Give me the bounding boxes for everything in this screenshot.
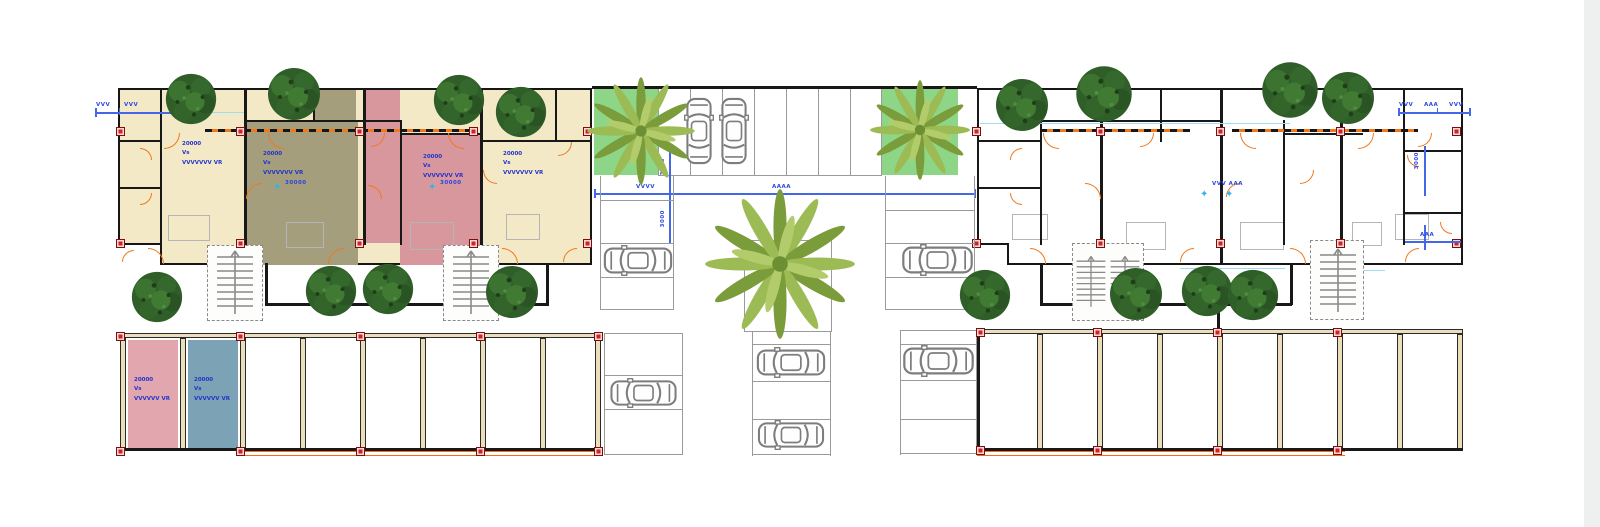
column-marker xyxy=(1213,328,1222,337)
column-marker xyxy=(1216,239,1225,248)
column-marker xyxy=(236,127,245,136)
boundary-orange-line xyxy=(977,451,1345,456)
car-icon xyxy=(606,378,681,408)
stall-line xyxy=(600,243,674,244)
boundary-orange-line xyxy=(242,451,601,456)
garage-wall xyxy=(120,338,126,450)
garage-wall xyxy=(595,338,601,450)
wall xyxy=(1283,133,1363,135)
column-marker xyxy=(236,332,245,341)
garage-wall xyxy=(1217,334,1223,449)
stall-line xyxy=(752,381,831,382)
stall-line xyxy=(682,333,683,455)
stall-line xyxy=(600,200,674,201)
tree-icon xyxy=(302,262,360,320)
balcony-dashed-wall xyxy=(1232,129,1418,132)
garage-wall xyxy=(480,338,486,450)
room-area-label: 20000 Vs VVVVVVV VR xyxy=(263,150,303,178)
column-marker xyxy=(976,446,985,455)
page-margin-strip xyxy=(1584,0,1600,527)
stall-line xyxy=(604,333,683,334)
dim-tick xyxy=(594,189,596,198)
tree-icon xyxy=(162,70,220,128)
wall xyxy=(363,88,366,245)
dim-label: AAA xyxy=(1420,233,1434,239)
column-marker xyxy=(1093,446,1102,455)
stall-line xyxy=(786,89,787,176)
tree-icon xyxy=(128,268,186,326)
garage-wall xyxy=(1457,334,1463,449)
column-marker xyxy=(1333,446,1342,455)
car-icon xyxy=(719,95,749,167)
stairs-icon xyxy=(1075,247,1107,317)
stall-line xyxy=(830,332,831,456)
area-small-label: 30000 xyxy=(285,181,307,187)
garage-wall xyxy=(1277,334,1283,449)
dim-label: 3000 xyxy=(1415,152,1421,169)
room-area-label: 20000 Vs VVVVVVV VR xyxy=(503,150,543,178)
column-marker xyxy=(1213,446,1222,455)
stall-line xyxy=(900,453,977,454)
furniture-outline xyxy=(1240,222,1284,250)
room-pink xyxy=(363,90,400,243)
stall-area-label: 20000 Vs VVVVVV VR xyxy=(134,376,170,404)
column-marker xyxy=(583,239,592,248)
porch-wall xyxy=(1040,263,1043,305)
tree-icon xyxy=(956,266,1014,324)
site-plan: 20000 Vs VVVVVVV VR 20000 Vs VVVVVVV VR … xyxy=(0,0,1600,527)
tree-icon xyxy=(1318,68,1378,128)
dim-line xyxy=(1405,241,1461,243)
garage-wall xyxy=(1157,334,1163,449)
column-marker xyxy=(116,447,125,456)
column-marker xyxy=(116,239,125,248)
dim-tick xyxy=(1398,108,1400,116)
column-marker xyxy=(355,127,364,136)
area-small-label: 30000 xyxy=(440,181,462,187)
dim-label: VVV xyxy=(1449,103,1463,109)
porch-wall xyxy=(546,263,549,305)
star-marker-icon: ✦ xyxy=(273,183,281,193)
stall-line xyxy=(900,380,977,381)
stall-line xyxy=(600,309,674,310)
dim-label: VVV AAA xyxy=(1212,182,1243,188)
stall-line xyxy=(885,210,975,211)
wall xyxy=(977,140,1042,142)
tree-icon xyxy=(264,64,324,124)
wall xyxy=(1403,150,1463,152)
dim-tick xyxy=(95,108,97,117)
wall xyxy=(555,88,557,142)
column-marker xyxy=(1216,127,1225,136)
dim-label: AAA xyxy=(1424,103,1438,109)
stall-line xyxy=(900,330,977,331)
stall-line xyxy=(752,332,753,456)
porch-wall xyxy=(1290,263,1293,305)
column-marker xyxy=(476,447,485,456)
stall-area-label: 20000 Vs VVVVVV VR xyxy=(194,376,230,404)
column-marker xyxy=(356,447,365,456)
column-marker xyxy=(236,447,245,456)
palm-tree-icon xyxy=(868,78,972,182)
stall-line xyxy=(604,454,683,455)
stall-line xyxy=(850,89,851,176)
stall-line xyxy=(752,344,831,345)
room-area-label: 20000 Vs VVVVVVV VR xyxy=(182,140,222,168)
stairs-icon xyxy=(1318,245,1358,317)
star-marker-icon: ✦ xyxy=(428,183,436,193)
dim-line xyxy=(1424,146,1426,196)
dim-label: VVV xyxy=(1399,103,1413,109)
column-marker xyxy=(355,239,364,248)
wall xyxy=(118,140,162,142)
dim-line xyxy=(1398,112,1470,114)
tree-icon xyxy=(359,260,417,318)
column-marker xyxy=(116,127,125,136)
column-marker xyxy=(1336,239,1345,248)
garage-wall xyxy=(180,338,186,450)
palm-tree-icon xyxy=(585,75,697,187)
dim-tick xyxy=(1469,108,1471,116)
garage-wall xyxy=(1097,334,1103,449)
column-marker xyxy=(1452,127,1461,136)
garage-wall xyxy=(540,338,546,450)
furniture-outline xyxy=(286,222,324,248)
tree-icon xyxy=(430,71,488,129)
stairwell xyxy=(207,245,263,321)
garage-wall xyxy=(1037,334,1043,449)
dim-label: 3000 xyxy=(661,210,667,227)
tree-icon xyxy=(1224,266,1282,324)
car-icon xyxy=(754,347,828,378)
tree-icon xyxy=(1258,58,1322,122)
column-marker xyxy=(1096,127,1105,136)
column-marker xyxy=(972,127,981,136)
dim-label: VVV xyxy=(96,103,110,109)
dim-label: VVV xyxy=(124,103,138,109)
wall xyxy=(118,187,162,189)
room-area-label: 20000 Vs VVVVVVV VR xyxy=(423,153,463,181)
tree-icon xyxy=(992,75,1052,135)
balcony-dashed-wall xyxy=(1040,129,1190,132)
star-marker-icon: ✦ xyxy=(1225,190,1233,200)
car-icon xyxy=(602,245,674,276)
column-marker xyxy=(476,332,485,341)
column-marker xyxy=(356,332,365,341)
column-marker xyxy=(1096,239,1105,248)
palm-tree-icon xyxy=(702,186,858,342)
column-marker xyxy=(594,447,603,456)
dim-tick xyxy=(119,108,120,115)
column-marker xyxy=(1093,328,1102,337)
garage-wall xyxy=(420,338,426,450)
stall-line xyxy=(900,419,977,420)
furniture-outline xyxy=(168,215,210,241)
star-marker-icon: ✦ xyxy=(1200,190,1208,200)
column-marker xyxy=(976,328,985,337)
stall-line xyxy=(600,277,674,278)
garage-wall xyxy=(977,334,980,449)
door-swing-icon xyxy=(122,250,134,262)
column-marker xyxy=(469,239,478,248)
tree-icon xyxy=(1072,62,1136,126)
column-marker xyxy=(116,332,125,341)
garage-wall xyxy=(300,338,306,450)
dim-tick xyxy=(1437,108,1438,114)
stall-line xyxy=(604,409,683,410)
porch-wall xyxy=(265,263,268,305)
wall xyxy=(1160,88,1162,142)
stall-line xyxy=(818,89,819,176)
stall-line xyxy=(604,333,605,455)
tree-icon xyxy=(492,83,550,141)
garage-wall xyxy=(240,338,246,450)
garage-wall xyxy=(1397,334,1403,449)
wall xyxy=(400,120,402,245)
wall xyxy=(977,187,1042,189)
stall-line xyxy=(604,375,683,376)
stall-line xyxy=(754,89,755,176)
car-icon xyxy=(902,345,975,377)
wall xyxy=(1283,120,1285,245)
garage-wall xyxy=(1337,334,1343,449)
stairwell xyxy=(1310,240,1364,320)
column-marker xyxy=(236,239,245,248)
stairs-icon xyxy=(215,248,255,318)
tree-icon xyxy=(1106,264,1166,324)
car-icon xyxy=(754,420,828,450)
wall xyxy=(1403,212,1463,214)
furniture-outline xyxy=(1012,214,1048,240)
tree-icon xyxy=(482,262,542,322)
garage-wall xyxy=(360,338,366,450)
furniture-outline xyxy=(506,214,540,240)
stall-line xyxy=(752,454,831,455)
column-marker xyxy=(1336,127,1345,136)
column-marker xyxy=(1333,328,1342,337)
stall-line xyxy=(900,330,901,455)
column-marker xyxy=(594,332,603,341)
